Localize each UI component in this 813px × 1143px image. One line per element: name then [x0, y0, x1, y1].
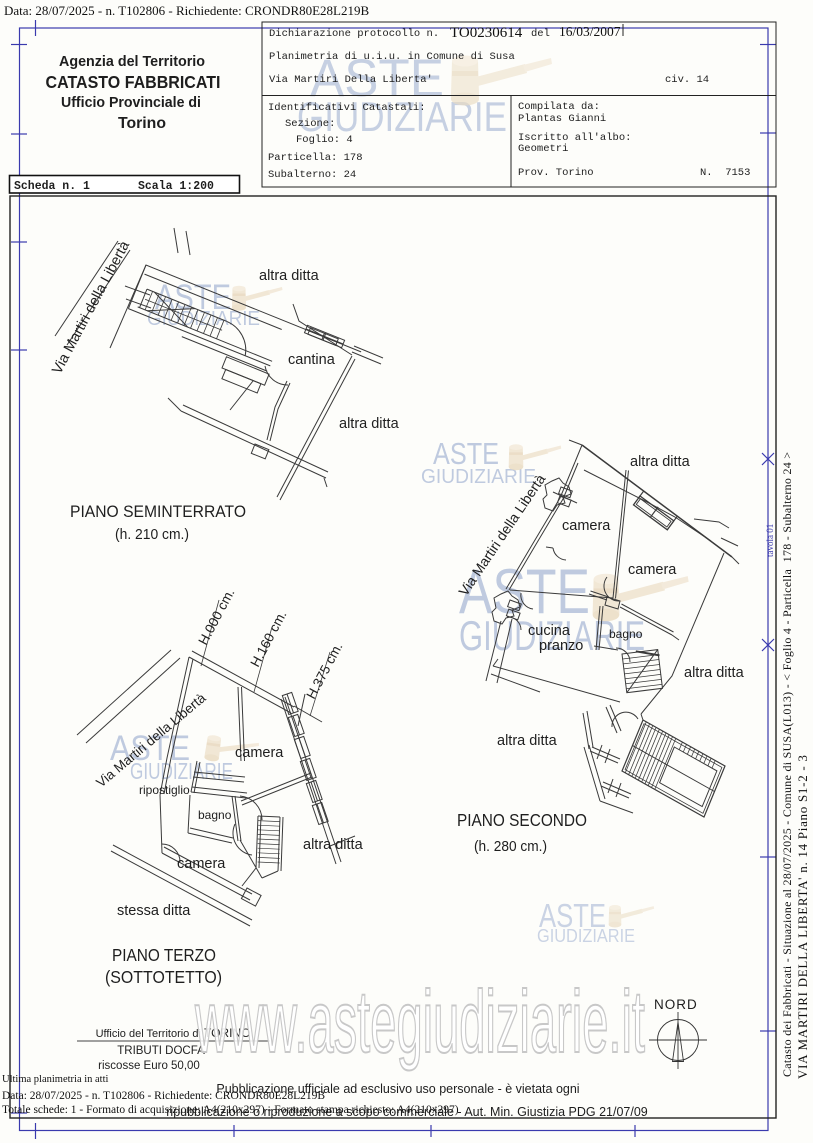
svg-text:Plantas Gianni: Plantas Gianni — [518, 113, 606, 125]
svg-text:Catasto dei Fabbricati - Situa: Catasto dei Fabbricati - Situazione al 2… — [780, 452, 794, 1077]
svg-text:CATASTO FABBRICATI: CATASTO FABBRICATI — [46, 72, 221, 92]
svg-text:altra ditta: altra ditta — [259, 268, 320, 284]
svg-text:altra ditta: altra ditta — [497, 733, 558, 749]
svg-text:Scheda n. 1: Scheda n. 1 — [14, 180, 90, 193]
svg-text:GIUDIZIARIE: GIUDIZIARIE — [130, 758, 233, 784]
svg-text:Torino: Torino — [118, 115, 166, 132]
svg-text:camera: camera — [177, 856, 226, 872]
svg-text:ripubblicazione o riproduzione: ripubblicazione o riproduzione a scopo c… — [166, 1105, 648, 1119]
svg-text:GIUDIZIARIE: GIUDIZIARIE — [147, 308, 260, 330]
svg-text:H.000 cm.: H.000 cm. — [195, 586, 237, 647]
svg-text:Via Martiri della Libertà: Via Martiri della Libertà — [49, 238, 133, 377]
svg-text:Data: 28/07/2025 - n. T102806: Data: 28/07/2025 - n. T102806 - Richiede… — [4, 3, 369, 18]
svg-text:altra ditta: altra ditta — [684, 665, 745, 681]
svg-text:altra ditta: altra ditta — [339, 416, 400, 432]
svg-text:camera: camera — [235, 745, 284, 761]
svg-text:stessa ditta: stessa ditta — [117, 903, 191, 919]
svg-text:pranzo: pranzo — [539, 638, 583, 654]
svg-text:Via Martiri Della Liberta': Via Martiri Della Liberta' — [269, 74, 433, 86]
svg-text:NORD: NORD — [654, 997, 698, 1012]
svg-text:Planimetria di u.i.u. in Comun: Planimetria di u.i.u. in Comune di Susa — [269, 51, 515, 63]
svg-text:del: del — [531, 28, 550, 40]
svg-text:bagno: bagno — [198, 808, 232, 822]
svg-text:PIANO SEMINTERRATO: PIANO SEMINTERRATO — [70, 502, 246, 521]
svg-text:riscosse Euro 50,00: riscosse Euro 50,00 — [98, 1060, 200, 1072]
svg-text:bagno: bagno — [609, 627, 643, 641]
svg-text:Geometri: Geometri — [518, 143, 568, 155]
svg-text:Sezione:: Sezione: — [285, 118, 335, 130]
svg-text:Pubblicazione ufficiale ad esc: Pubblicazione ufficiale ad esclusivo uso… — [216, 1082, 579, 1096]
svg-text:cucina: cucina — [528, 623, 571, 639]
svg-text:PIANO SECONDO: PIANO SECONDO — [457, 810, 587, 830]
svg-text:(h. 210 cm.): (h. 210 cm.) — [115, 527, 189, 543]
svg-text:N. 7153: N. 7153 — [700, 167, 750, 179]
svg-text:ripostiglio: ripostiglio — [139, 783, 190, 797]
svg-text:www.astegiudiziarie.it: www.astegiudiziarie.it — [194, 972, 645, 1071]
svg-text:PIANO TERZO: PIANO TERZO — [112, 945, 216, 965]
svg-text:H.160 cm.: H.160 cm. — [247, 608, 289, 669]
svg-text:16/03/2007: 16/03/2007 — [559, 24, 621, 39]
svg-text:Compilata da:: Compilata da: — [518, 101, 600, 113]
svg-text:cantina: cantina — [288, 352, 336, 368]
svg-text:Ultima planimetria in atti: Ultima planimetria in atti — [2, 1074, 109, 1085]
svg-text:Prov. Torino: Prov. Torino — [518, 167, 594, 179]
svg-text:Ufficio Provinciale di: Ufficio Provinciale di — [61, 94, 201, 111]
svg-text:Agenzia del Territorio: Agenzia del Territorio — [59, 53, 205, 70]
svg-text:(SOTTOTETTO): (SOTTOTETTO) — [105, 967, 222, 987]
svg-text:civ. 14: civ. 14 — [665, 74, 709, 86]
svg-text:TO0230614: TO0230614 — [450, 25, 523, 41]
svg-text:Identificativi Catastali:: Identificativi Catastali: — [268, 102, 426, 114]
svg-text:Particella: 178: Particella: 178 — [268, 152, 363, 164]
svg-text:H.375 cm.: H.375 cm. — [303, 640, 345, 701]
svg-text:tavola 01: tavola 01 — [765, 524, 775, 557]
svg-text:camera: camera — [628, 562, 677, 578]
svg-text:altra ditta: altra ditta — [630, 454, 691, 470]
svg-text:GIUDIZIARIE: GIUDIZIARIE — [537, 926, 635, 946]
svg-text:TRIBUTI DOCFA: TRIBUTI DOCFA — [117, 1045, 205, 1057]
svg-text:Scala 1:200: Scala 1:200 — [138, 180, 214, 193]
svg-text:(h. 280 cm.): (h. 280 cm.) — [474, 839, 547, 855]
svg-text:altra ditta: altra ditta — [303, 837, 364, 853]
svg-text:Foglio: 4: Foglio: 4 — [296, 134, 353, 146]
svg-text:Dichiarazione protocollo n.: Dichiarazione protocollo n. — [269, 28, 439, 40]
svg-text:Subalterno: 24: Subalterno: 24 — [268, 169, 356, 181]
svg-text:camera: camera — [562, 518, 611, 534]
svg-text:VIA MARTIRI DELLA LIBERTA' n.: VIA MARTIRI DELLA LIBERTA' n. 14 Piano S… — [795, 754, 810, 1079]
